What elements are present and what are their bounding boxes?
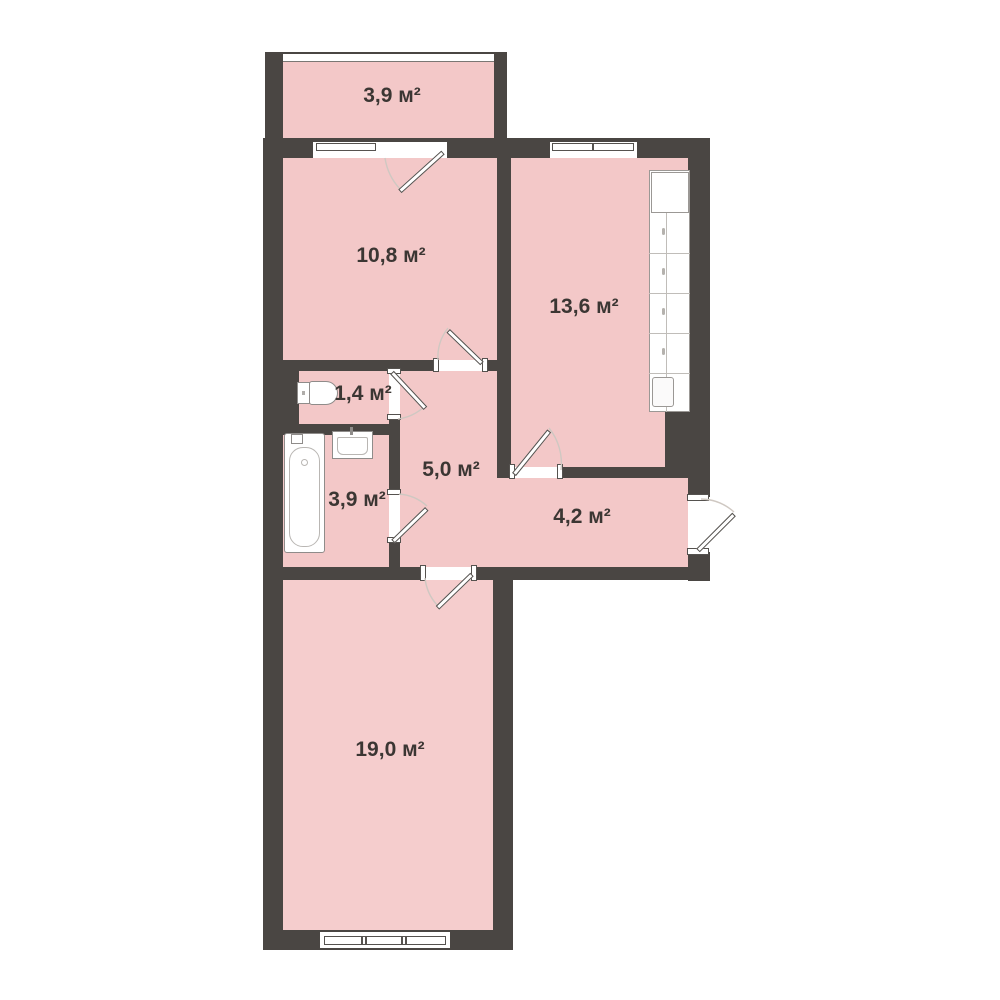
sink-tap: [350, 427, 353, 435]
room-label-hallway: 5,0 м²: [396, 458, 506, 482]
cabinet-divider: [649, 253, 690, 254]
cabinet-handle: [662, 268, 665, 275]
bathtub-faucet: [291, 434, 303, 444]
kitchen-fridge: [651, 172, 689, 213]
room-label-wc: 1,4 м²: [308, 382, 418, 406]
cabinet-divider: [649, 293, 690, 294]
room-label-corridor: 4,2 м²: [527, 505, 637, 529]
kitchen-door-arc: [549, 428, 561, 470]
cabinet-handle: [662, 308, 665, 315]
cabinet-divider: [649, 373, 690, 374]
living-door-arc: [425, 578, 437, 605]
cabinet-divider: [649, 333, 690, 334]
toilet-tank-button: [302, 391, 305, 395]
floor-plan: 3,9 м² 10,8 м² 13,6 м² 1,4 м² 5,0 м² 3,9…: [0, 0, 1000, 1000]
room-label-living: 19,0 м²: [335, 738, 445, 762]
sink-basin: [337, 437, 368, 455]
room-label-bedroom: 10,8 м²: [336, 244, 446, 268]
bathtub-drain: [301, 459, 308, 466]
room-label-bathroom: 3,9 м²: [302, 488, 412, 512]
cabinet-handle: [662, 228, 665, 235]
room-label-kitchen: 13,6 м²: [529, 295, 639, 319]
cabinet-handle: [662, 348, 665, 355]
room-label-balcony: 3,9 м²: [337, 84, 447, 108]
entrance-door-arc: [701, 499, 734, 512]
door-swing-arcs: [0, 0, 1000, 1000]
kitchen-stove: [652, 377, 674, 407]
balcony-door-arc: [385, 158, 400, 189]
